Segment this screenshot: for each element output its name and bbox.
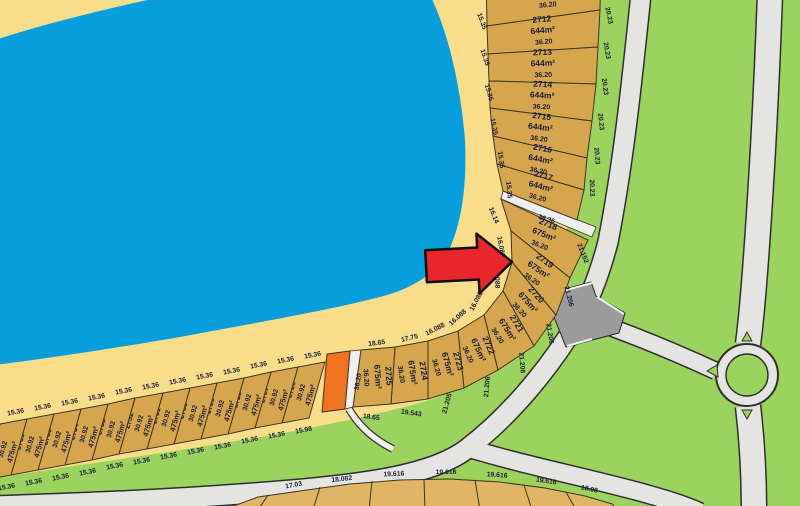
lot-2713-area: 644m² [530,58,555,69]
dim-road_bottom-3: 19.616 [436,469,457,476]
dim-verge_top-4: 20.23 [592,147,600,165]
dim-road_bottom-2: 19.616 [383,470,404,478]
subdivision-map: 644m²36.202712644m²36.202713644m²36.2027… [0,0,800,506]
dim-verge_top-5: 20.23 [588,179,596,196]
lot-2725-number: 2725 [383,366,394,386]
roundabout-island [726,354,768,396]
lot-2713-number: 2713 [533,47,553,58]
dim-road_bottom-4: 19.616 [486,471,507,479]
road-south [748,406,754,506]
dim-beach_top-5: 15.35 [504,181,512,199]
lot-2712-number: 2712 [532,13,552,25]
lot-2725-area: 675m² [372,364,384,389]
lot-2714-area: 644m² [530,89,555,100]
highlighted-lot[interactable] [322,351,350,412]
lot-2714-number: 2714 [533,79,553,90]
dim-verge_mid-3: 21.206 [517,352,525,373]
